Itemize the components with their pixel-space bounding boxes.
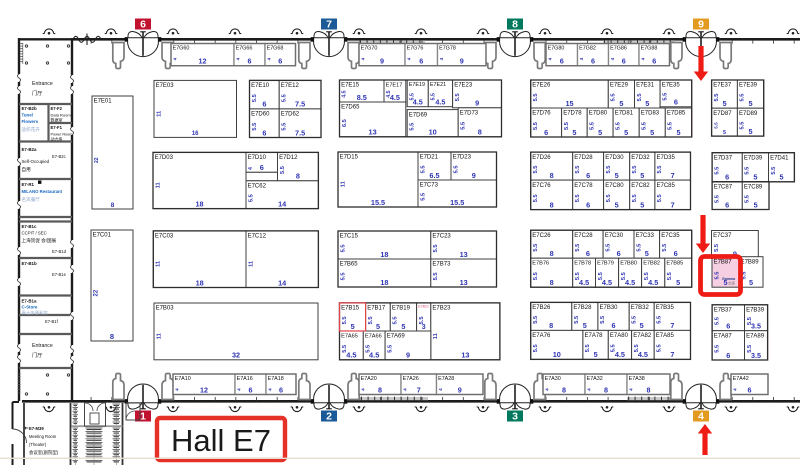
svg-text:E7D65: E7D65 [341,105,360,111]
svg-text:5: 5 [351,322,355,331]
svg-text:11: 11 [340,181,346,187]
svg-text:E7D26: E7D26 [532,155,551,161]
svg-text:9: 9 [458,385,462,394]
svg-text:E7G88: E7G88 [641,46,658,52]
svg-text:6: 6 [726,351,730,360]
svg-text:E7D23: E7D23 [453,155,472,161]
svg-text:门厅: 门厅 [32,351,42,359]
svg-text:E7A78: E7A78 [585,333,604,339]
svg-text:E7A18: E7A18 [268,376,284,382]
svg-text:4: 4 [629,388,634,391]
svg-text:5.5: 5.5 [615,122,621,130]
svg-text:4.5: 4.5 [625,278,635,287]
svg-text:9: 9 [698,19,704,31]
svg-text:E7B37: E7B37 [714,308,733,314]
svg-text:5.5: 5.5 [668,122,674,130]
svg-text:E7-B2b: E7-B2b [22,106,37,111]
svg-text:4.5: 4.5 [390,93,400,102]
svg-text:4.5: 4.5 [369,351,379,360]
svg-text:5.5: 5.5 [657,166,663,174]
svg-text:5.5: 5.5 [771,167,777,175]
svg-text:合源: 合源 [728,281,735,286]
svg-text:E7E15: E7E15 [341,83,360,89]
svg-text:15: 15 [565,99,573,108]
svg-text:E7A76: E7A76 [532,333,551,339]
svg-text:15.5: 15.5 [450,198,464,207]
svg-text:5: 5 [722,99,726,108]
svg-text:E7D73: E7D73 [460,111,479,117]
svg-text:5.5: 5.5 [533,166,539,174]
svg-text:4.5: 4.5 [615,350,625,359]
svg-text:5.5: 5.5 [714,244,720,252]
svg-text:E7D32: E7D32 [631,155,650,161]
svg-text:5: 5 [572,128,576,137]
svg-text:5: 5 [753,173,757,182]
svg-text:5.5: 5.5 [662,93,668,101]
svg-text:E7A65: E7A65 [341,333,358,339]
svg-text:(Theater): (Theater) [29,442,47,447]
svg-text:6: 6 [674,249,678,258]
svg-text:E7A82: E7A82 [633,333,652,339]
svg-text:5.5: 5.5 [585,344,591,352]
svg-text:E7E26: E7E26 [532,83,551,89]
svg-text:7: 7 [417,385,421,394]
svg-text:E7C12: E7C12 [248,234,267,240]
svg-text:7.5: 7.5 [295,100,305,109]
svg-text:6: 6 [260,163,264,172]
svg-text:4.5: 4.5 [346,351,356,360]
svg-text:E7D15: E7D15 [340,155,359,161]
svg-text:E7A38: E7A38 [629,376,645,382]
svg-text:E7D10: E7D10 [248,155,267,161]
svg-text:E7A69: E7A69 [387,334,406,340]
svg-text:4.5: 4.5 [413,98,423,107]
svg-text:E7G76: E7G76 [407,46,424,52]
svg-text:E7G70: E7G70 [361,46,378,52]
svg-text:5: 5 [650,128,654,137]
svg-text:5.5: 5.5 [667,272,673,280]
svg-text:E7D83: E7D83 [641,111,660,117]
svg-text:E7-B1b: E7-B1b [22,261,37,266]
svg-text:9: 9 [406,351,410,360]
svg-text:E7B15: E7B15 [341,306,360,312]
svg-text:5.5: 5.5 [340,244,346,252]
svg-text:E7D37: E7D37 [714,155,733,161]
svg-text:E7-R1: E7-R1 [22,182,35,187]
svg-text:6: 6 [725,173,729,182]
svg-text:喜士多便利店: 喜士多便利店 [22,310,49,317]
svg-text:E7A80: E7A80 [610,333,629,339]
svg-text:E7B19: E7B19 [392,306,411,312]
svg-text:E7B80: E7B80 [620,261,637,267]
svg-text:4: 4 [698,411,704,423]
svg-text:E7C62: E7C62 [248,184,267,190]
svg-text:E7B89: E7B89 [741,259,760,265]
svg-text:4: 4 [237,388,242,391]
svg-text:E7G60: E7G60 [173,46,190,52]
svg-text:8: 8 [550,249,554,258]
svg-text:6: 6 [725,200,729,209]
svg-text:18: 18 [196,278,204,287]
svg-text:E7E37: E7E37 [713,83,732,89]
svg-text:E7C26: E7C26 [532,233,551,239]
svg-text:上海贸促 会/国展: 上海贸促 会/国展 [22,237,57,244]
svg-text:E7D41: E7D41 [770,155,789,161]
svg-text:4: 4 [438,388,443,391]
svg-text:5: 5 [749,278,753,287]
svg-text:E7A66: E7A66 [365,333,382,339]
svg-text:E7E23: E7E23 [454,83,473,89]
svg-text:14: 14 [278,278,287,287]
svg-text:E7B82: E7B82 [643,261,660,267]
svg-text:E7-M39: E7-M39 [29,426,44,431]
svg-text:E7A85: E7A85 [656,333,675,339]
svg-text:E7C15: E7C15 [340,234,359,240]
svg-text:E7E39: E7E39 [739,83,758,89]
svg-text:E7A10: E7A10 [175,376,191,382]
svg-text:E7-B1c: E7-B1c [22,224,37,229]
svg-text:E7E12: E7E12 [281,83,300,89]
svg-text:6: 6 [419,57,423,66]
svg-text:4: 4 [403,388,408,391]
svg-text:5.5: 5.5 [657,344,663,352]
svg-text:5.5: 5.5 [533,316,539,324]
svg-text:Meeting Room: Meeting Room [29,434,57,439]
svg-text:E7A16: E7A16 [237,376,253,382]
svg-text:会议室(剧院型): 会议室(剧院型) [29,449,59,456]
svg-text:6: 6 [262,100,266,109]
svg-text:CCPIT / SEC: CCPIT / SEC [22,231,47,236]
svg-text:E7B28: E7B28 [573,305,592,311]
svg-text:E7E03: E7E03 [156,83,175,89]
svg-text:11: 11 [155,182,161,188]
svg-text:E7D35: E7D35 [657,155,676,161]
svg-text:5.5: 5.5 [714,317,720,325]
svg-text:5: 5 [676,278,680,287]
svg-text:6: 6 [278,57,282,66]
svg-text:8: 8 [550,200,554,209]
svg-text:E7B65: E7B65 [340,262,359,268]
svg-text:8: 8 [111,202,115,209]
svg-text:5: 5 [779,173,783,182]
svg-text:7: 7 [670,350,674,359]
svg-text:E7D21: E7D21 [420,155,439,161]
svg-text:E7D12: E7D12 [279,155,298,161]
svg-text:E7B32: E7B32 [631,305,650,311]
svg-text:Entrance: Entrance [32,343,53,349]
svg-text:6: 6 [262,128,266,137]
svg-text:E7B35: E7B35 [656,305,675,311]
svg-text:5.5: 5.5 [714,195,720,203]
svg-text:E7B73: E7B73 [432,262,451,268]
svg-text:6: 6 [726,322,730,331]
svg-text:E7A26: E7A26 [403,376,419,382]
svg-text:5.5: 5.5 [611,93,617,101]
svg-text:8: 8 [550,171,554,180]
svg-text:Hall E7: Hall E7 [171,423,271,458]
svg-text:5.5: 5.5 [420,165,426,173]
svg-text:6: 6 [249,385,253,394]
svg-text:5.5: 5.5 [533,194,539,202]
svg-text:E7C33: E7C33 [636,233,655,239]
svg-text:5.5: 5.5 [662,244,668,252]
svg-text:E7C03: E7C03 [155,234,174,240]
svg-text:7: 7 [671,200,675,209]
svg-text:10: 10 [429,128,437,137]
svg-text:4: 4 [361,388,366,391]
svg-text:8: 8 [604,385,608,394]
svg-text:5: 5 [676,128,680,137]
svg-text:6: 6 [748,385,752,394]
svg-text:E7B23: E7B23 [432,306,451,312]
svg-text:9: 9 [472,171,476,180]
svg-text:5.5: 5.5 [433,244,439,252]
svg-text:E7D28: E7D28 [574,155,593,161]
svg-text:5.5: 5.5 [433,272,439,280]
svg-text:7: 7 [670,321,674,330]
svg-text:门厅: 门厅 [32,89,42,97]
svg-text:5.5: 5.5 [368,316,374,324]
svg-text:4: 4 [175,388,180,391]
svg-text:6: 6 [586,171,590,180]
svg-text:6: 6 [544,128,548,137]
svg-text:5: 5 [598,128,602,137]
svg-text:3.5: 3.5 [751,351,761,360]
svg-text:E7E35: E7E35 [662,83,681,89]
svg-text:4: 4 [733,388,738,391]
svg-text:Tunel: Tunel [22,113,33,118]
svg-text:5.5: 5.5 [605,244,611,252]
svg-text:E7A32: E7A32 [587,376,603,382]
svg-text:4: 4 [173,57,178,60]
svg-text:5.5: 5.5 [533,344,539,352]
svg-text:6: 6 [591,57,595,66]
svg-text:E7G82: E7G82 [579,46,596,52]
svg-text:5: 5 [723,130,726,136]
svg-text:8: 8 [512,19,518,31]
svg-text:5.5: 5.5 [657,194,663,202]
svg-text:途织花卉: 途织花卉 [22,126,41,133]
svg-text:E7G68: E7G68 [267,46,284,52]
svg-text:5.5: 5.5 [575,244,581,252]
svg-text:32: 32 [232,351,240,360]
svg-text:C-Store: C-Store [22,305,38,310]
svg-text:E7E17: E7E17 [386,82,403,88]
svg-text:11: 11 [156,333,162,339]
svg-text:5.5: 5.5 [713,122,718,129]
svg-text:5.5: 5.5 [740,94,746,102]
svg-text:3: 3 [512,411,518,423]
svg-text:E7B87: E7B87 [714,259,733,265]
svg-text:11: 11 [433,333,439,339]
svg-text:E7C30: E7C30 [605,233,624,239]
svg-text:4: 4 [579,57,584,60]
svg-text:5.5: 5.5 [714,272,720,280]
svg-text:6: 6 [248,57,252,66]
svg-text:4.5: 4.5 [602,278,612,287]
svg-text:4.5: 4.5 [579,278,589,287]
svg-text:4: 4 [268,388,273,391]
svg-text:E7-F2: E7-F2 [51,106,63,111]
svg-text:5: 5 [640,321,644,330]
svg-text:8: 8 [378,385,382,394]
svg-text:5.5: 5.5 [632,194,638,202]
svg-text:E7-B1f: E7-B1f [45,319,59,324]
svg-text:5.5: 5.5 [282,123,288,131]
svg-text:4: 4 [439,57,444,60]
svg-text:数据室: 数据室 [51,117,63,123]
svg-text:6: 6 [586,249,590,258]
svg-text:4: 4 [236,57,241,60]
svg-text:5.5: 5.5 [340,272,346,280]
svg-text:8.5: 8.5 [357,93,367,102]
svg-text:E7A42: E7A42 [733,376,749,382]
svg-text:E7B21: E7B21 [418,305,429,309]
svg-text:5.5: 5.5 [740,122,746,130]
svg-text:E7G86: E7G86 [610,46,627,52]
svg-text:8: 8 [478,128,482,137]
svg-text:5: 5 [640,200,644,209]
svg-text:7: 7 [671,171,675,180]
svg-text:5.5: 5.5 [282,94,288,102]
svg-text:Flowers: Flowers [22,119,39,124]
svg-text:E7C89: E7C89 [744,185,763,191]
svg-text:5.5: 5.5 [420,193,426,201]
svg-text:E7-B1e: E7-B1e [52,272,67,277]
svg-text:5.5: 5.5 [632,316,638,324]
svg-text:11: 11 [248,261,254,267]
svg-text:E7C87: E7C87 [714,185,733,191]
svg-text:E7B03: E7B03 [156,306,175,312]
svg-text:E7D30: E7D30 [605,155,624,161]
svg-text:4: 4 [548,57,553,60]
svg-text:5.5: 5.5 [606,166,612,174]
svg-text:4.5: 4.5 [648,278,658,287]
svg-text:5: 5 [640,171,644,180]
svg-text:5.5: 5.5 [533,272,539,280]
svg-text:E7C37: E7C37 [713,233,732,239]
svg-text:5.5: 5.5 [574,316,580,324]
svg-text:5.5: 5.5 [745,167,751,175]
svg-text:8: 8 [110,332,114,341]
svg-text:5: 5 [619,99,623,108]
svg-text:自用: 自用 [22,166,32,173]
svg-text:13: 13 [460,278,468,287]
svg-text:E7D69: E7D69 [409,112,428,118]
svg-text:5.5: 5.5 [745,195,751,203]
svg-text:7: 7 [326,19,332,31]
svg-text:E7D81: E7D81 [615,111,634,117]
svg-text:5.5: 5.5 [714,345,720,353]
svg-text:4: 4 [545,388,550,391]
svg-text:4: 4 [407,57,412,60]
svg-text:E7D89: E7D89 [739,111,758,117]
svg-text:5.5: 5.5 [657,316,663,324]
svg-text:5.5: 5.5 [575,166,581,174]
svg-text:E7B30: E7B30 [600,305,619,311]
svg-text:E7C28: E7C28 [574,233,593,239]
svg-text:18: 18 [380,278,388,287]
svg-text:5.5: 5.5 [590,122,596,130]
svg-text:5: 5 [583,321,587,330]
svg-text:6: 6 [611,321,615,330]
svg-text:E7C73: E7C73 [420,183,439,189]
svg-text:E7D03: E7D03 [155,155,174,161]
svg-text:动力房: 动力房 [51,136,63,142]
svg-text:5.5: 5.5 [248,194,254,202]
svg-text:4.5: 4.5 [638,350,648,359]
svg-text:5.5: 5.5 [453,165,459,173]
svg-text:E7G66: E7G66 [236,46,253,52]
svg-text:E7B39: E7B39 [746,308,765,314]
svg-text:6: 6 [674,98,678,107]
svg-text:MILANO Restaurant: MILANO Restaurant [22,189,63,194]
svg-text:5: 5 [615,171,619,180]
svg-text:14: 14 [278,199,287,208]
svg-text:5: 5 [748,127,752,136]
svg-text:11: 11 [156,261,162,267]
svg-text:13: 13 [369,128,377,137]
svg-text:5: 5 [624,128,628,137]
svg-text:6: 6 [586,200,590,209]
svg-text:E7C85: E7C85 [657,183,676,189]
svg-text:E7B76: E7B76 [532,261,549,267]
svg-text:13: 13 [461,351,469,360]
svg-text:5.5: 5.5 [575,194,581,202]
svg-text:5.5: 5.5 [600,316,606,324]
svg-text:E7D78: E7D78 [563,111,582,117]
svg-text:5.5: 5.5 [564,122,570,130]
svg-text:4.5: 4.5 [435,98,445,107]
svg-text:15.5: 15.5 [371,198,385,207]
svg-text:Entrance: Entrance [32,81,53,87]
svg-text:1: 1 [140,411,146,423]
svg-text:E7E21: E7E21 [430,82,446,88]
svg-text:E7C80: E7C80 [605,183,624,189]
svg-text:18: 18 [380,250,388,259]
svg-text:8: 8 [549,321,553,330]
svg-text:4.5: 4.5 [342,90,348,97]
svg-text:22: 22 [94,289,100,296]
svg-text:16: 16 [192,131,199,137]
svg-text:5.5: 5.5 [410,123,416,131]
svg-text:E7A89: E7A89 [746,333,765,339]
svg-text:12: 12 [200,385,208,394]
svg-text:E7C78: E7C78 [574,183,593,189]
svg-text:Self-Occupied: Self-Occupied [22,159,50,164]
svg-text:4: 4 [587,388,592,391]
svg-text:E7E19: E7E19 [409,82,425,88]
svg-text:13: 13 [460,250,468,259]
svg-text:2: 2 [326,411,332,423]
svg-text:8: 8 [550,278,554,287]
svg-text:E7A20: E7A20 [361,376,377,382]
svg-text:5: 5 [376,322,380,331]
svg-text:E7-F1: E7-F1 [51,125,63,130]
svg-text:E7-B1d: E7-B1d [52,249,67,254]
svg-text:11: 11 [156,111,162,117]
svg-text:6: 6 [279,385,283,394]
svg-text:5: 5 [748,99,752,108]
svg-text:5.5: 5.5 [642,122,648,130]
svg-text:E7C76: E7C76 [532,183,551,189]
svg-text:E7C35: E7C35 [661,233,680,239]
svg-text:E7A28: E7A28 [438,376,454,382]
svg-text:E7B78: E7B78 [574,261,591,267]
svg-text:E7C82: E7C82 [631,183,650,189]
svg-text:5.5: 5.5 [455,93,461,101]
svg-text:E7A30: E7A30 [545,376,561,382]
